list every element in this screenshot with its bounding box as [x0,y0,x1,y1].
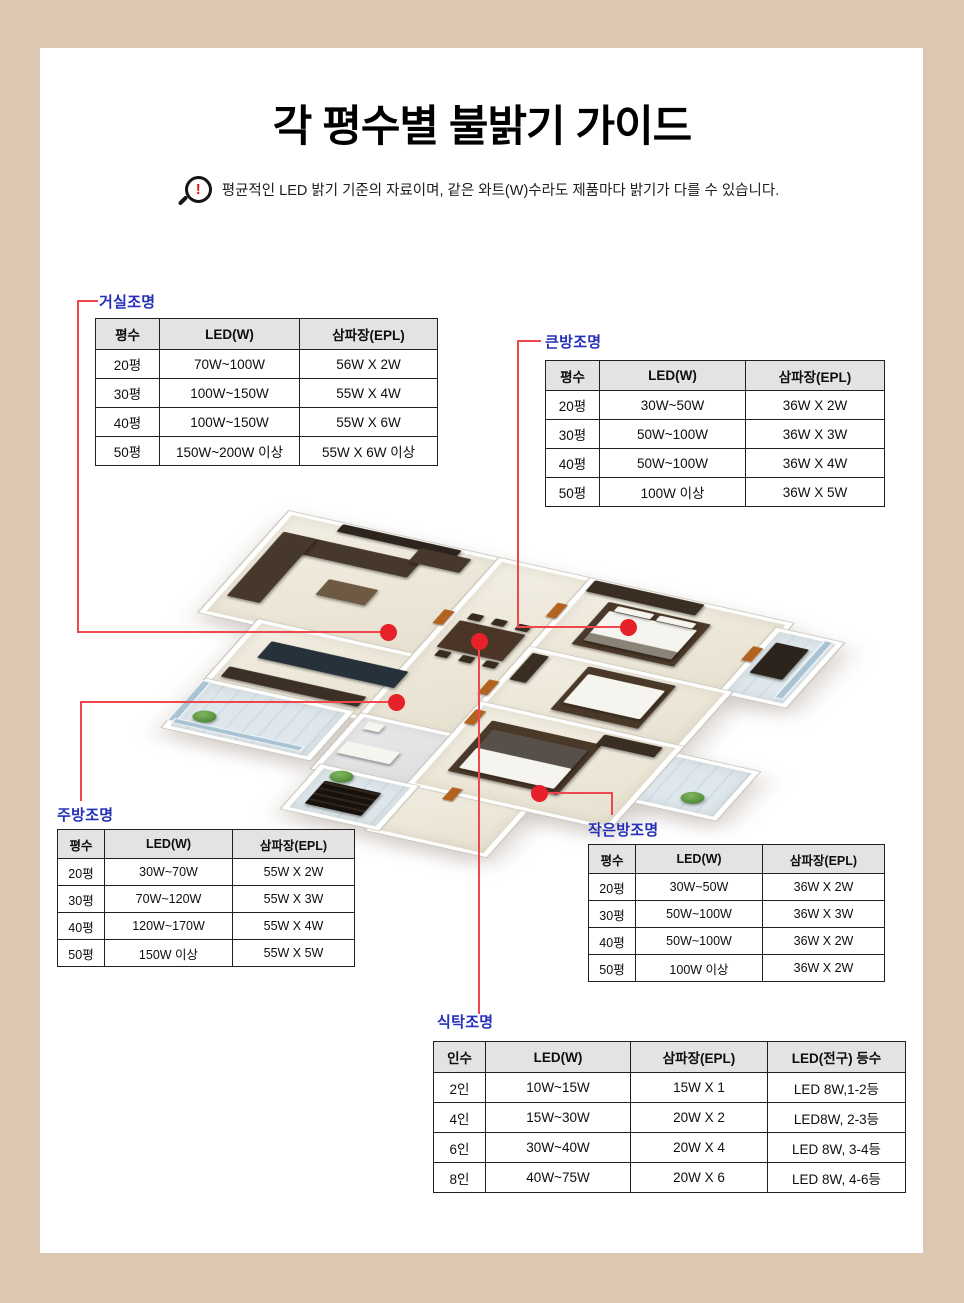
table-row: 20평30W~50W36W X 2W [589,874,885,901]
connector-line-bigroom [517,626,629,628]
connector-line-kitchen [80,701,397,703]
table-row: 20평30W~50W36W X 2W [546,391,885,420]
connector-line-living [77,631,389,633]
table-row: 50평100W 이상36W X 2W [589,955,885,982]
col-header: LED(W) [636,845,763,874]
table-header-row: 평수 LED(W) 삼파장(EPL) [96,319,438,350]
marker-dot-dining [471,633,488,650]
section-label-kitchen: 주방조명 [57,804,113,825]
table-row: 40평120W~170W55W X 4W [58,913,355,940]
col-header: LED(W) [600,361,746,391]
col-header: LED(W) [105,830,233,859]
table-row: 8인40W~75W20W X 6LED 8W, 4-6등 [434,1163,906,1193]
notice: ! 평균적인 LED 밝기 기준의 자료이며, 같은 와트(W)수라도 제품마다… [0,176,964,203]
col-header: 평수 [96,319,160,350]
col-header: LED(전구) 등수 [768,1042,906,1073]
marker-dot-kitchen [388,694,405,711]
table-row: 30평50W~100W36W X 3W [546,420,885,449]
bigroom-table: 평수 LED(W) 삼파장(EPL) 20평30W~50W36W X 2W 30… [545,360,885,507]
section-label-dining: 식탁조명 [437,1011,493,1032]
connector-line-bigroom [517,340,519,628]
col-header: 삼파장(EPL) [233,830,355,859]
table-row: 50평150W~200W 이상55W X 6W 이상 [96,437,438,466]
col-header: LED(W) [160,319,300,350]
table-row: 50평100W 이상36W X 5W [546,478,885,507]
col-header: 평수 [589,845,636,874]
page-title: 각 평수별 불밝기 가이드 [0,92,964,154]
exclamation-glyph: ! [196,182,201,197]
connector-line-kitchen [80,701,82,801]
table-row: 40평100W~150W55W X 6W [96,408,438,437]
col-header: LED(W) [486,1042,631,1073]
col-header: 삼파장(EPL) [746,361,885,391]
dining-table-info: 인수 LED(W) 삼파장(EPL) LED(전구) 등수 2인10W~15W1… [433,1041,906,1193]
table-header-row: 평수 LED(W) 삼파장(EPL) [589,845,885,874]
connector-line-living [77,300,79,632]
table-row: 6인30W~40W20W X 4LED 8W, 3-4등 [434,1133,906,1163]
table-row: 30평50W~100W36W X 3W [589,901,885,928]
col-header: 삼파장(EPL) [300,319,438,350]
section-label-living: 거실조명 [99,291,155,312]
table-row: 40평50W~100W36W X 4W [546,449,885,478]
infographic-page: { "page": { "title": "각 평수별 불밝기 가이드", "n… [0,0,964,1303]
connector-line-dining [478,641,480,1014]
table-row: 20평70W~100W56W X 2W [96,350,438,379]
col-header: 삼파장(EPL) [763,845,885,874]
warning-magnifier-icon: ! [185,176,212,203]
table-row: 30평100W~150W55W X 4W [96,379,438,408]
connector-line-living [77,300,98,302]
col-header: 평수 [58,830,105,859]
table-header-row: 평수 LED(W) 삼파장(EPL) [546,361,885,391]
col-header: 삼파장(EPL) [631,1042,768,1073]
table-row: 2인10W~15W15W X 1LED 8W,1-2등 [434,1073,906,1103]
col-header: 평수 [546,361,600,391]
notice-text: 평균적인 LED 밝기 기준의 자료이며, 같은 와트(W)수라도 제품마다 밝… [222,179,779,200]
connector-line-bigroom [517,340,541,342]
table-row: 20평30W~70W55W X 2W [58,859,355,886]
smallroom-table: 평수 LED(W) 삼파장(EPL) 20평30W~50W36W X 2W 30… [588,844,885,982]
marker-dot-living [380,624,397,641]
table-header-row: 인수 LED(W) 삼파장(EPL) LED(전구) 등수 [434,1042,906,1073]
table-row: 30평70W~120W55W X 3W [58,886,355,913]
section-label-bigroom: 큰방조명 [545,331,601,352]
table-header-row: 평수 LED(W) 삼파장(EPL) [58,830,355,859]
connector-line-smallroom [539,792,613,794]
table-row: 40평50W~100W36W X 2W [589,928,885,955]
marker-dot-bigroom [620,619,637,636]
connector-line-smallroom [611,792,613,815]
section-label-smallroom: 작은방조명 [588,819,659,840]
table-row: 4인15W~30W20W X 2LED8W, 2-3등 [434,1103,906,1133]
marker-dot-smallroom [531,785,548,802]
kitchen-table: 평수 LED(W) 삼파장(EPL) 20평30W~70W55W X 2W 30… [57,829,355,967]
table-row: 50평150W 이상55W X 5W [58,940,355,967]
living-table: 평수 LED(W) 삼파장(EPL) 20평70W~100W56W X 2W 3… [95,318,438,466]
col-header: 인수 [434,1042,486,1073]
